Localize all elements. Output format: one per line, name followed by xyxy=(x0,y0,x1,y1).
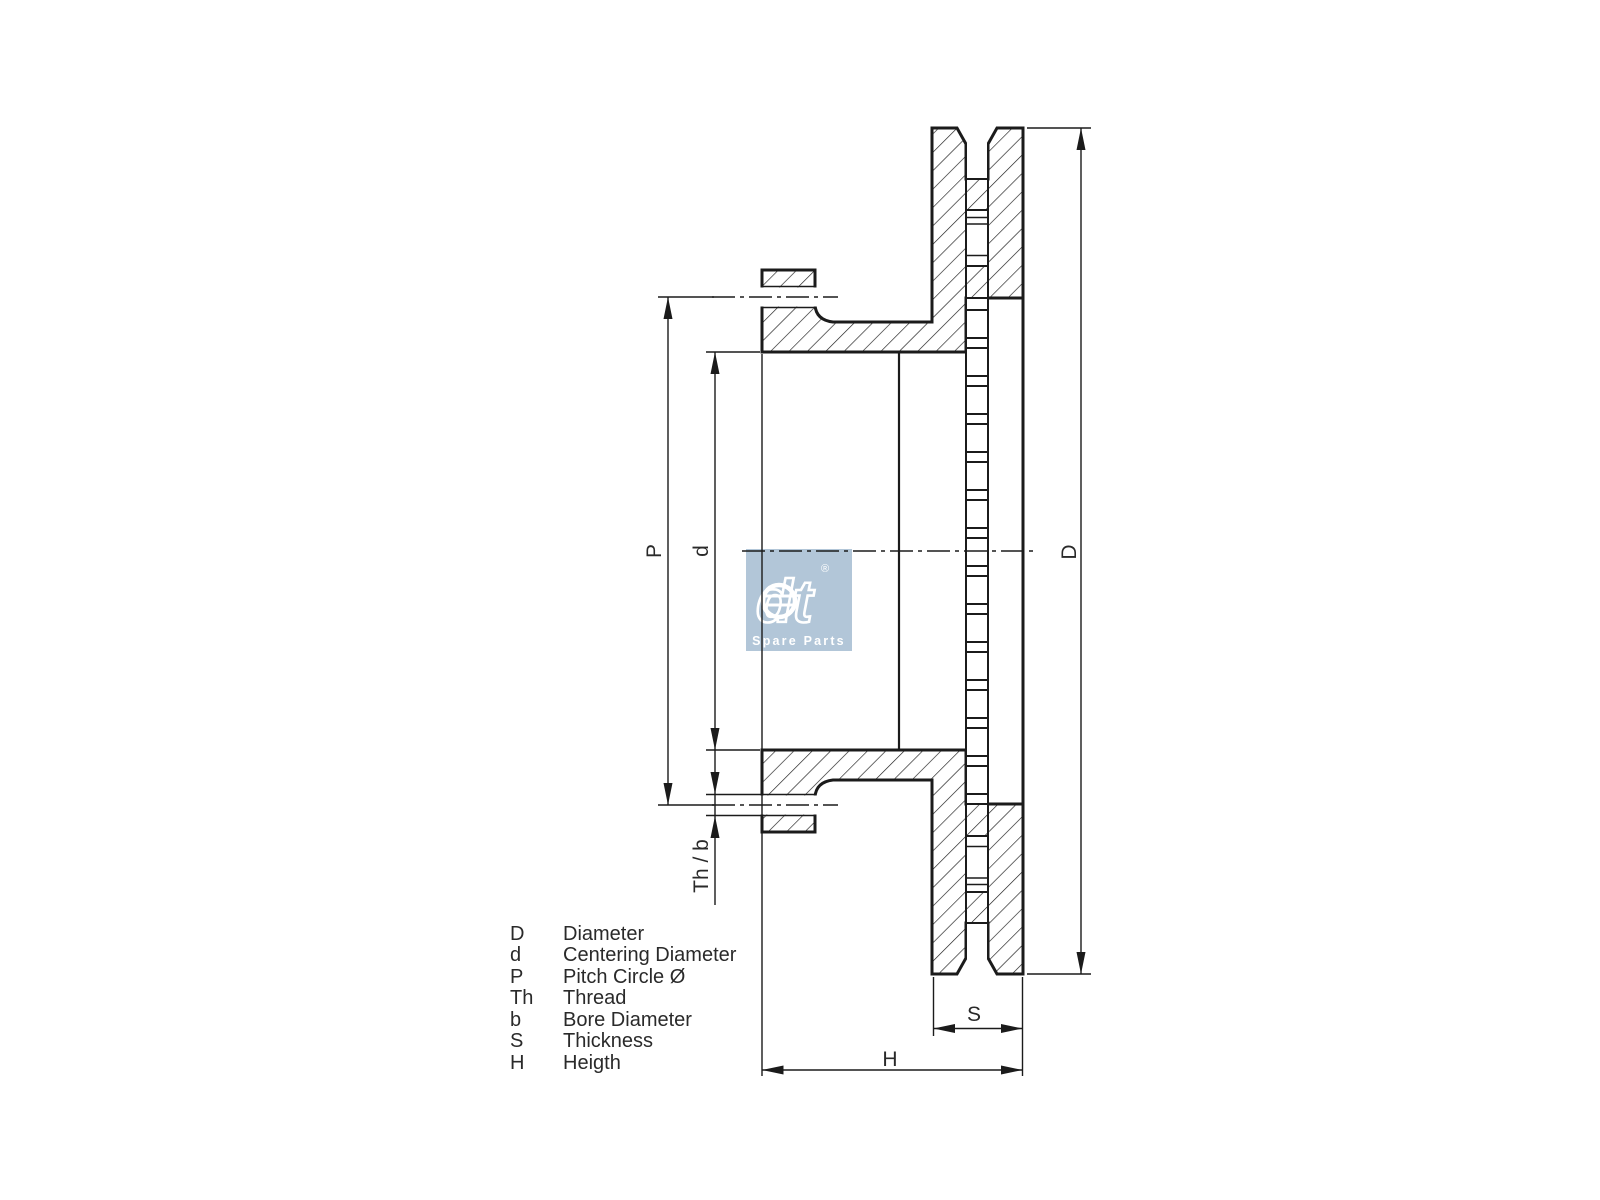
vane-section xyxy=(966,179,988,210)
legend-symbol: b xyxy=(510,1009,521,1031)
legend-symbol: Th xyxy=(510,987,533,1009)
pitch-circle-label: P xyxy=(643,544,666,558)
arrow-icon xyxy=(711,772,720,794)
legend-description: Pitch Circle Ø xyxy=(563,966,685,988)
diameter-label: D xyxy=(1058,544,1081,559)
arrow-icon xyxy=(1001,1024,1023,1033)
legend-symbol: P xyxy=(510,966,523,988)
arrow-icon xyxy=(934,1024,956,1033)
brake-disc-diagram: dt ® Spare Parts xyxy=(0,0,1600,1200)
logo-tagline: Spare Parts xyxy=(752,634,846,648)
thread-bore-label: Th / b xyxy=(690,839,713,893)
center-lines xyxy=(712,297,1038,805)
legend-description: Diameter xyxy=(563,923,644,945)
vane-section xyxy=(966,266,988,298)
legend-description: Thickness xyxy=(563,1030,653,1052)
logo-registered-mark: ® xyxy=(821,563,829,575)
vane-section xyxy=(966,804,988,836)
arrow-icon xyxy=(664,783,673,805)
vane-section xyxy=(966,892,988,923)
legend-symbol: H xyxy=(510,1052,524,1074)
extension-lines xyxy=(658,128,1091,1076)
thickness-label: S xyxy=(967,1003,981,1026)
legend-description: Bore Diameter xyxy=(563,1009,692,1031)
height-label: H xyxy=(882,1048,897,1071)
legend-symbol: D xyxy=(510,923,524,945)
legend-description: Heigth xyxy=(563,1052,621,1074)
arrow-icon xyxy=(1077,128,1086,150)
arrow-icon xyxy=(664,297,673,319)
legend-symbol: S xyxy=(510,1030,523,1052)
arrow-icon xyxy=(711,352,720,374)
arrow-icon xyxy=(711,816,720,838)
centering-diameter-label: d xyxy=(690,545,713,557)
vent-hole xyxy=(966,836,988,892)
legend-symbol: d xyxy=(510,944,521,966)
arrow-icon xyxy=(1001,1066,1023,1075)
arrow-icon xyxy=(711,728,720,750)
legend: D Diameter d Centering Diameter P Pitch … xyxy=(510,923,737,1074)
arrow-icon xyxy=(1077,952,1086,974)
arrow-icon xyxy=(762,1066,784,1075)
technical-drawing-page: dt ® Spare Parts xyxy=(0,0,1600,1200)
legend-description: Centering Diameter xyxy=(563,944,737,966)
legend-description: Thread xyxy=(563,987,626,1009)
vent-hole xyxy=(966,210,988,266)
